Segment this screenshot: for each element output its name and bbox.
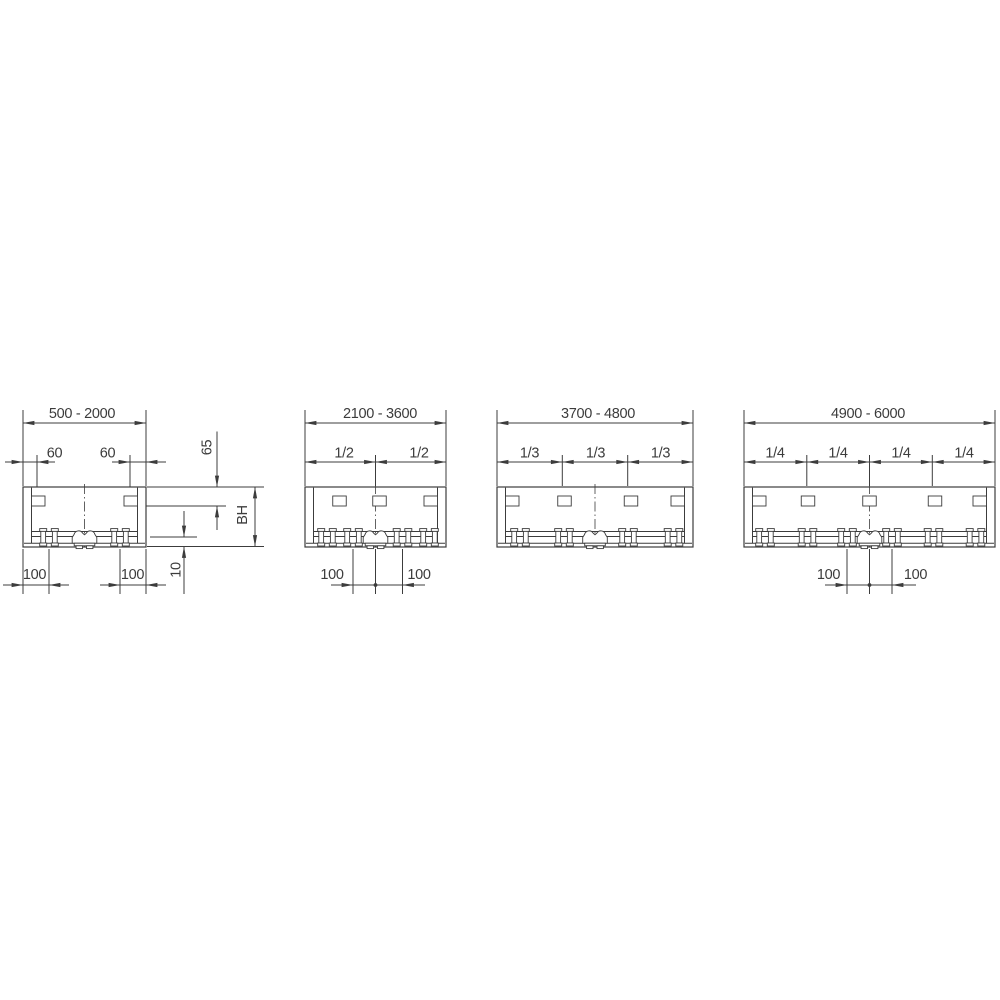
technical-drawing: 500 - 2000 60 60 100 100 65 BH 10 bbox=[0, 0, 1000, 1000]
panel4-bottom-offset-right-label: 100 bbox=[904, 567, 928, 583]
panel4-mounting-clip bbox=[753, 496, 767, 506]
panel3-fraction-label-2: 1/3 bbox=[586, 446, 605, 462]
panel2-mounting-clip bbox=[424, 496, 438, 506]
panel2-fraction-label-2: 1/2 bbox=[409, 446, 428, 462]
panel3-width-range-label: 3700 - 4800 bbox=[561, 406, 635, 422]
panel2-width-range-label: 2100 - 3600 bbox=[343, 406, 417, 422]
panel2-frame bbox=[305, 484, 446, 549]
panel1-side-top-offset-label: 65 bbox=[200, 440, 216, 456]
panel3-mounting-clip bbox=[624, 496, 638, 506]
technical-drawing-page: 500 - 2000 60 60 100 100 65 BH 10 bbox=[0, 0, 1000, 1000]
panel2-mounting-clip bbox=[373, 496, 387, 506]
panel2-bottom-offset-left-label: 100 bbox=[320, 567, 344, 583]
panel1-drawing: 500 - 2000 60 60 100 100 65 BH 10 bbox=[3, 406, 264, 594]
panel1-width-range-label: 500 - 2000 bbox=[49, 406, 116, 422]
panel1-side-height-label: BH bbox=[235, 505, 251, 525]
panel3-mounting-clip bbox=[558, 496, 572, 506]
panel1-side-bottom-lip-label: 10 bbox=[169, 562, 185, 578]
panel2-bottom-offset-right-label: 100 bbox=[407, 567, 431, 583]
panel4-bottom-offset-left-label: 100 bbox=[817, 567, 841, 583]
panel4-drawing: 4900 - 6000 1/4 1/4 1/4 1/4 100 100 bbox=[744, 406, 995, 594]
panel4-mounting-clip bbox=[928, 496, 942, 506]
panel4-fraction-label-3: 1/4 bbox=[891, 446, 910, 462]
panel3-frame bbox=[497, 484, 693, 549]
panel4-fraction-label-2: 1/4 bbox=[828, 446, 847, 462]
panel4-width-range-label: 4900 - 6000 bbox=[831, 406, 905, 422]
panel3-drawing: 3700 - 4800 1/3 1/3 1/3 bbox=[497, 406, 693, 549]
panel3-fraction-label-1: 1/3 bbox=[520, 446, 539, 462]
panel4-frame bbox=[744, 484, 995, 549]
panel4-center-origin-dot bbox=[868, 583, 872, 587]
panel1-top-offset-left-label: 60 bbox=[47, 446, 63, 462]
panel1-top-offset-right-label: 60 bbox=[100, 446, 116, 462]
panel1-mounting-clip bbox=[32, 496, 46, 506]
panel1-bottom-offset-right-label: 100 bbox=[121, 567, 145, 583]
panel4-mounting-clip bbox=[863, 496, 877, 506]
panel3-fraction-label-3: 1/3 bbox=[651, 446, 670, 462]
panel4-mounting-clip bbox=[801, 496, 815, 506]
panel4-fraction-label-4: 1/4 bbox=[954, 446, 973, 462]
panel2-mounting-clip bbox=[333, 496, 347, 506]
panel4-mounting-clip bbox=[973, 496, 987, 506]
panel2-fraction-label-1: 1/2 bbox=[334, 446, 353, 462]
panel1-frame bbox=[23, 484, 146, 549]
panel3-mounting-clip bbox=[506, 496, 520, 506]
panel2-drawing: 2100 - 3600 1/2 1/2 100 100 bbox=[305, 406, 446, 594]
panel4-fraction-label-1: 1/4 bbox=[765, 446, 784, 462]
panel2-center-origin-dot bbox=[374, 583, 378, 587]
panel1-mounting-clip bbox=[124, 496, 138, 506]
panel3-mounting-clip bbox=[671, 496, 685, 506]
panel1-bottom-offset-left-label: 100 bbox=[23, 567, 47, 583]
